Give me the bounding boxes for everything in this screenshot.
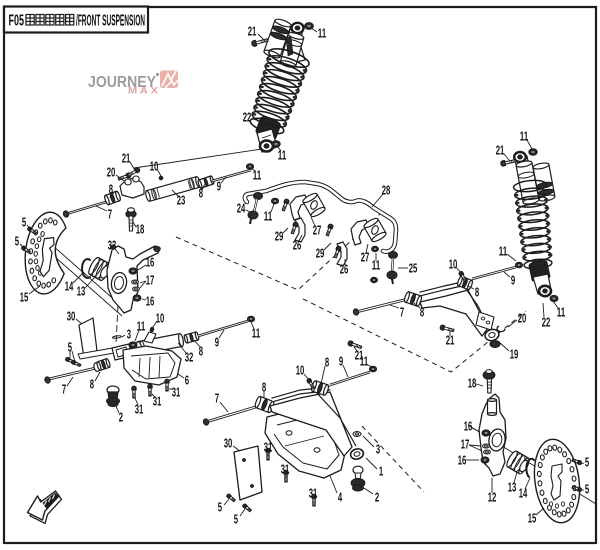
svg-text:11: 11 (318, 26, 327, 40)
svg-text:8: 8 (475, 285, 479, 299)
svg-text:20: 20 (518, 311, 527, 325)
svg-text:11: 11 (499, 244, 508, 258)
svg-text:3: 3 (376, 442, 380, 456)
svg-text:5: 5 (218, 500, 222, 514)
svg-text:17: 17 (461, 437, 470, 451)
svg-text:24: 24 (237, 201, 246, 215)
svg-text:30: 30 (224, 436, 233, 450)
svg-text:3: 3 (127, 327, 131, 341)
svg-text:5: 5 (15, 234, 19, 248)
svg-text:21: 21 (248, 24, 257, 38)
svg-text:27: 27 (361, 250, 370, 264)
svg-text:31: 31 (309, 486, 318, 500)
svg-text:11: 11 (252, 326, 261, 340)
svg-text:M A X: M A X (128, 86, 158, 96)
svg-text:20: 20 (107, 165, 116, 179)
svg-text:13: 13 (77, 284, 86, 298)
svg-text:7: 7 (400, 305, 404, 319)
svg-text:11: 11 (520, 129, 529, 143)
svg-text:28: 28 (382, 183, 391, 197)
svg-text:14: 14 (65, 279, 74, 293)
svg-text:17: 17 (146, 273, 155, 287)
svg-text:8: 8 (420, 305, 424, 319)
svg-text:16: 16 (458, 453, 467, 467)
svg-text:1: 1 (379, 464, 383, 478)
svg-text:14: 14 (519, 486, 528, 500)
svg-text:31: 31 (281, 462, 290, 476)
svg-text:5: 5 (22, 215, 26, 229)
svg-text:16: 16 (146, 294, 155, 308)
svg-text:30: 30 (67, 309, 76, 323)
svg-text:16: 16 (146, 255, 155, 269)
svg-text:10: 10 (156, 311, 165, 325)
svg-text:11: 11 (137, 319, 146, 333)
svg-text:22: 22 (542, 315, 551, 329)
svg-text:10: 10 (150, 159, 159, 173)
svg-text:2: 2 (119, 410, 123, 424)
svg-text:5: 5 (585, 455, 589, 469)
svg-text:21: 21 (122, 151, 131, 165)
svg-text:7: 7 (62, 382, 66, 396)
svg-text:19: 19 (510, 347, 519, 361)
svg-text:10: 10 (296, 363, 305, 377)
svg-text:8: 8 (90, 377, 94, 391)
svg-text:9: 9 (511, 273, 515, 287)
svg-text:31: 31 (135, 402, 144, 416)
svg-text:33: 33 (108, 238, 117, 252)
svg-text:15: 15 (528, 511, 537, 525)
svg-text:F05: F05 (9, 13, 25, 30)
svg-text:29: 29 (316, 246, 325, 260)
svg-text:29: 29 (275, 229, 284, 243)
svg-text:15: 15 (20, 290, 29, 304)
svg-text:7: 7 (215, 391, 219, 405)
svg-text:/FRONT SUSPENSION: /FRONT SUSPENSION (76, 13, 145, 30)
svg-text:16: 16 (464, 419, 473, 433)
svg-text:8: 8 (325, 355, 329, 369)
svg-text:10: 10 (449, 257, 458, 271)
svg-text:26: 26 (293, 238, 302, 252)
svg-text:18: 18 (468, 376, 477, 390)
svg-text:7: 7 (108, 207, 112, 221)
svg-text:9: 9 (339, 354, 343, 368)
svg-text:13: 13 (508, 480, 517, 494)
svg-text:22: 22 (243, 110, 252, 124)
svg-text:25: 25 (409, 261, 418, 275)
svg-text:4: 4 (338, 490, 342, 504)
svg-text:2: 2 (375, 490, 379, 504)
svg-text:11: 11 (278, 148, 287, 162)
svg-text:18: 18 (136, 222, 145, 236)
svg-text:5: 5 (234, 512, 238, 526)
svg-text:27: 27 (313, 223, 322, 237)
svg-text:21: 21 (496, 143, 505, 157)
svg-text:9: 9 (215, 335, 219, 349)
svg-text:31: 31 (172, 385, 181, 399)
svg-text:26: 26 (340, 262, 349, 276)
svg-text:6: 6 (185, 373, 189, 387)
svg-text:9: 9 (217, 179, 221, 193)
svg-text:5: 5 (585, 482, 589, 496)
